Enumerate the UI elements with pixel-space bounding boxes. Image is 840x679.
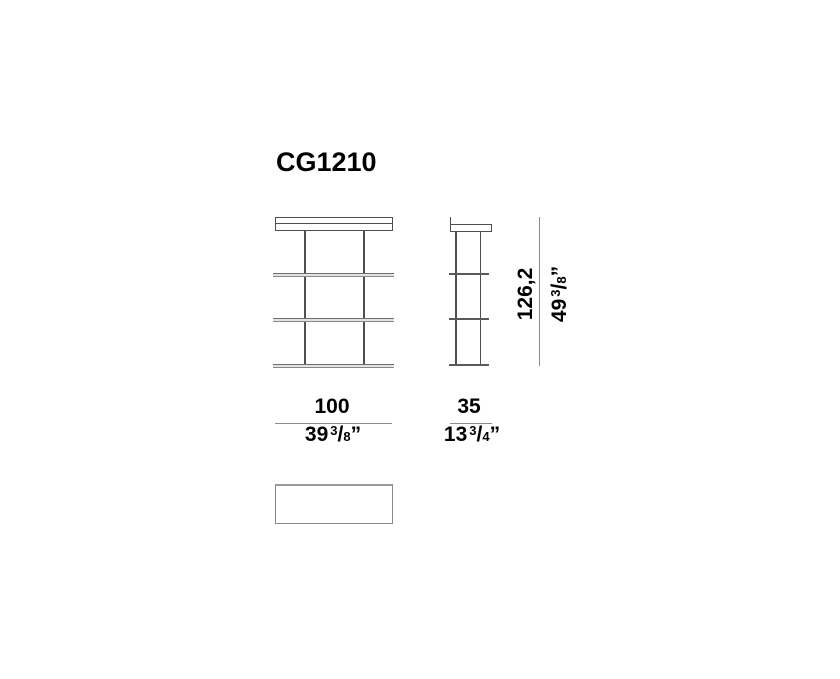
height-inch-mark: ”: [548, 266, 571, 277]
side-shelf-2: [449, 318, 489, 320]
front-top-shelf-midline: [276, 223, 392, 224]
width-inch-mark: ”: [351, 423, 362, 446]
front-post-right: [363, 230, 365, 366]
front-shelf-2: [273, 318, 395, 322]
front-post-left: [304, 230, 306, 366]
width-metric-label: 100: [272, 396, 392, 417]
side-post-front: [455, 231, 457, 366]
height-fraction-slash: /: [548, 284, 571, 290]
front-shelf-1: [273, 273, 395, 277]
width-fraction-numerator: 3: [330, 423, 337, 438]
plan-view-outline: [275, 484, 393, 524]
height-dimension-line: [539, 217, 540, 366]
side-shelf-3: [449, 364, 489, 366]
depth-inch-mark: ”: [490, 423, 501, 446]
height-fraction-denominator: 8: [554, 276, 569, 283]
width-fraction-denominator: 8: [343, 429, 350, 444]
page-title: CG1210: [276, 149, 377, 176]
width-imperial-label: 393/8”: [273, 424, 393, 445]
height-imperial-label: 493/8”: [544, 219, 568, 369]
front-shelf-3: [273, 364, 395, 368]
technical-drawing-canvas: CG1210 126,2 493/8”: [0, 0, 840, 679]
height-fraction-numerator: 3: [548, 290, 563, 297]
depth-fraction-numerator: 3: [469, 423, 476, 438]
side-shelf-1: [449, 273, 489, 275]
depth-metric-label: 35: [409, 396, 529, 417]
height-metric-label: 126,2: [514, 219, 538, 369]
depth-fraction-denominator: 4: [482, 429, 489, 444]
depth-imperial-label: 133/4”: [412, 424, 532, 445]
side-post-back: [480, 231, 482, 366]
front-top-shelf: [275, 217, 393, 231]
